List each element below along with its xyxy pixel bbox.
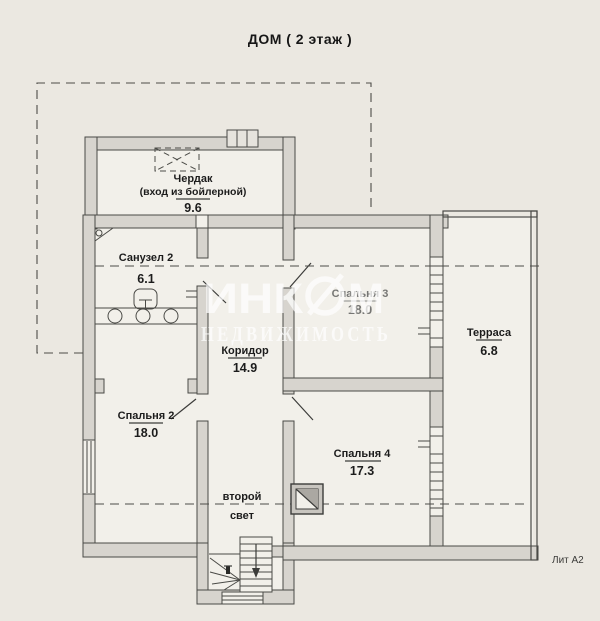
bedroom4-name: Спальня 4 xyxy=(334,448,392,460)
attic-note: (вход из бойлерной) xyxy=(140,186,247,198)
window-left-bedroom2 xyxy=(83,440,95,494)
attic-entry-opening xyxy=(196,215,208,228)
watermark-brand-right: М xyxy=(348,275,384,323)
floorplan-drawing: ДОМ ( 2 этаж ) xyxy=(0,0,600,621)
floorplan-page: ДОМ ( 2 этаж ) xyxy=(0,0,600,621)
second-light-window xyxy=(291,484,323,514)
bedroom4-area: 17.3 xyxy=(350,464,374,478)
corridor-name: Коридор xyxy=(221,345,269,357)
watermark: ИНК М НЕДВИЖИМОСТЬ xyxy=(201,275,391,346)
second-light-word1: второй xyxy=(223,491,262,503)
watermark-subtitle: НЕДВИЖИМОСТЬ xyxy=(201,322,391,346)
bedroom2-name: Спальня 2 xyxy=(118,410,175,422)
bathroom2-area: 6.1 xyxy=(137,272,154,286)
bathroom2-name: Санузел 2 xyxy=(119,252,173,264)
chimney-shaft xyxy=(227,130,258,147)
entry-steps xyxy=(222,592,263,604)
attic-area: 9.6 xyxy=(184,201,201,215)
page-title: ДОМ ( 2 этаж ) xyxy=(248,31,352,47)
corridor-area: 14.9 xyxy=(233,361,257,375)
watermark-brand-left: ИНК xyxy=(203,275,304,323)
second-light-word2: свет xyxy=(230,510,255,522)
bedroom2-area: 18.0 xyxy=(134,426,158,440)
terrace-name: Терраса xyxy=(467,327,512,339)
terrace-area: 6.8 xyxy=(480,344,497,358)
attic-name: Чердак xyxy=(174,173,213,185)
lit-label: Лит А2 xyxy=(552,555,584,566)
